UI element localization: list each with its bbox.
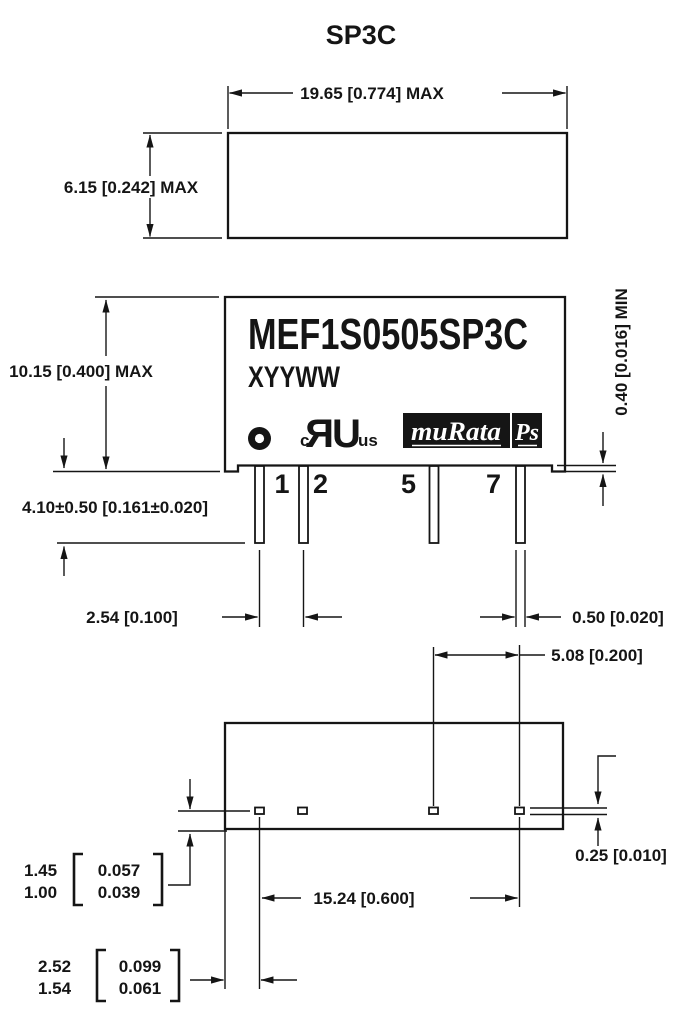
dim-in-min: 0.061	[119, 979, 162, 998]
pin-2-label: 2	[313, 469, 328, 499]
pad-5	[429, 808, 438, 815]
bottom-view: 5.08 [0.200] 15.24 [0.600] 1.45 1.00 0.0…	[24, 645, 667, 1001]
dim-pin-thickness-label: 0.25 [0.010]	[575, 846, 667, 865]
dim-in-min: 0.039	[98, 883, 141, 902]
ps-logo: Ps	[512, 413, 542, 448]
dim-in-max: 0.057	[98, 861, 141, 880]
pin-7	[516, 466, 525, 543]
dim-body-width-label: 19.65 [0.774] MAX	[300, 84, 444, 103]
front-view: 1 2 5 7 MEF1S0505SP3C XYYWW c UR us muRa…	[9, 288, 664, 627]
dim-pin1-to-edge-label: 2.52 1.54 0.099 0.061	[38, 950, 179, 1001]
pin-5	[430, 466, 439, 543]
murata-logo-text: muRata	[411, 417, 501, 446]
leader-arrow	[168, 834, 190, 885]
pad-1	[255, 808, 264, 815]
ps-logo-text: Ps	[514, 420, 539, 446]
top-view: 19.65 [0.774] MAX 6.15 [0.242] MAX	[64, 84, 567, 238]
dim-mm-max: 1.45	[24, 861, 57, 880]
dim-pin-pitch-label: 2.54 [0.100]	[86, 608, 178, 627]
dim-in-max: 0.099	[119, 957, 162, 976]
pin1-indicator-hole	[255, 434, 264, 443]
bracket-left	[74, 854, 83, 905]
page-title: SP3C	[326, 20, 397, 50]
dim-pad-to-edge-label: 1.45 1.00 0.057 0.039	[24, 854, 162, 905]
pad-2	[298, 808, 307, 815]
date-code: XYYWW	[248, 361, 341, 394]
pad-7	[515, 808, 524, 815]
bracket-left	[97, 950, 106, 1001]
pin-1-label: 1	[275, 469, 290, 499]
pin-5-label: 5	[401, 469, 416, 499]
dim-standoff-label: 0.40 [0.016] MIN	[612, 288, 631, 416]
dim-mm-min: 1.00	[24, 883, 57, 902]
bracket-right	[170, 950, 179, 1001]
dim-pin-gap-label: 5.08 [0.200]	[551, 646, 643, 665]
ul-monogram: UR	[305, 412, 361, 456]
dim-pin-length-label: 4.10±0.50 [0.161±0.020]	[22, 498, 208, 517]
part-number: MEF1S0505SP3C	[248, 310, 528, 359]
package-drawing-sp3c: SP3C 19.65 [0.774] MAX 6.15 [0.242] MAX …	[0, 0, 681, 1024]
pin-7-label: 7	[486, 469, 501, 499]
leader-arrow	[598, 756, 616, 804]
dim-body-depth-label: 6.15 [0.242] MAX	[64, 178, 199, 197]
dim-mm-max: 2.52	[38, 957, 71, 976]
dim-row-span-label: 15.24 [0.600]	[313, 889, 414, 908]
pin-2	[299, 466, 308, 543]
dim-pin-width-label: 0.50 [0.020]	[572, 608, 664, 627]
bottom-view-body	[225, 723, 563, 829]
bracket-right	[153, 854, 162, 905]
murata-logo: muRata	[403, 413, 510, 448]
dim-mm-min: 1.54	[38, 979, 72, 998]
pin-1	[255, 466, 264, 543]
ul-us-label: us	[358, 431, 378, 450]
dim-body-height-label: 10.15 [0.400] MAX	[9, 362, 153, 381]
top-view-body	[228, 133, 567, 238]
